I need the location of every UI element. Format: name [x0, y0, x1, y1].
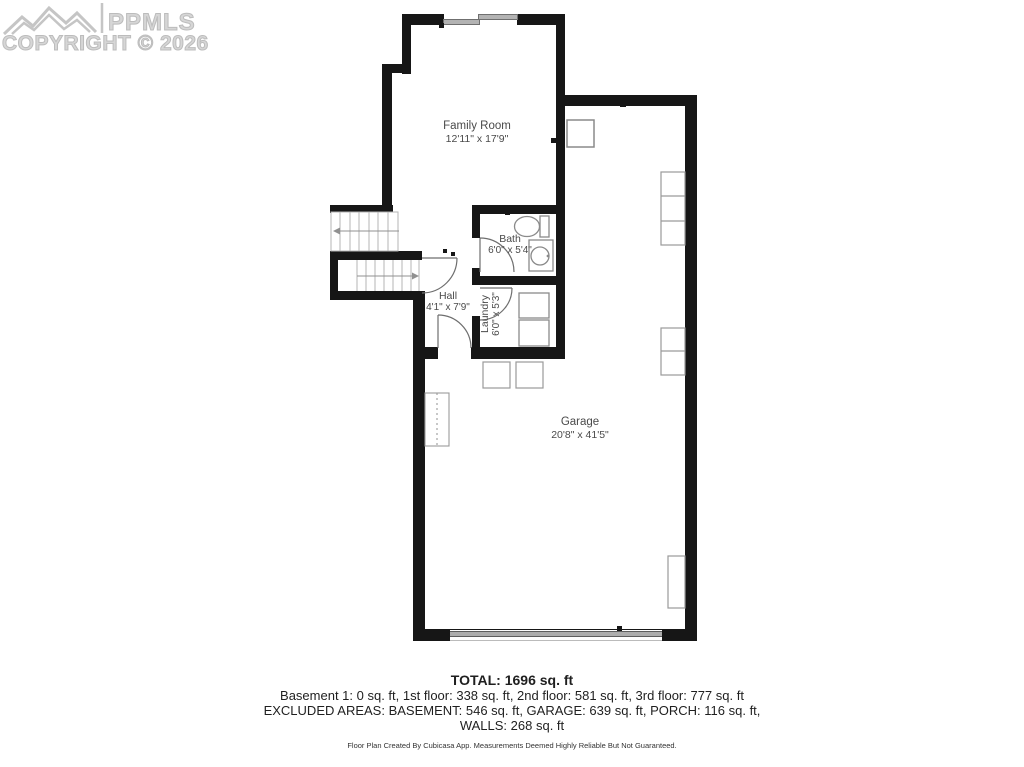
disclaimer-text: Floor Plan Created By Cubicasa App. Meas…	[0, 741, 1024, 750]
staircase-upper-flight	[331, 212, 399, 251]
room-dimensions: 12'11" x 17'9"	[397, 133, 557, 146]
floor-areas: Basement 1: 0 sq. ft, 1st floor: 338 sq.…	[0, 688, 1024, 703]
door-hall-to-garage	[438, 315, 471, 348]
garage-cabinets-right-middle	[661, 328, 685, 375]
garage-appliance-left	[483, 362, 510, 388]
walls-area: WALLS: 268 sq. ft	[0, 718, 1024, 733]
room-name: Bath	[470, 233, 550, 245]
garage-cabinets-right-top	[661, 172, 685, 245]
floor-plan-page: PPMLS COPYRIGHT © 2026	[0, 0, 1024, 767]
washer-fixture	[519, 293, 549, 318]
stair-direction-arrow	[412, 273, 419, 280]
room-label-laundry: Laundry 6'0" x 5'3"	[479, 274, 503, 354]
garage-fixture-square	[567, 120, 594, 147]
room-label-bath: Bath 6'0" x 5'4"	[470, 233, 550, 257]
total-area: TOTAL: 1696 sq. ft	[0, 673, 1024, 688]
room-name: Garage	[500, 416, 660, 429]
garage-appliance-right	[516, 362, 543, 388]
room-dimensions: 6'0" x 5'3"	[491, 274, 503, 354]
staircase-lower-flight	[357, 260, 419, 291]
room-label-garage: Garage 20'8" x 41'5"	[500, 416, 660, 442]
room-dimensions: 20'8" x 41'5"	[500, 429, 660, 442]
room-dimensions: 4'1" x 7'9"	[408, 302, 488, 314]
room-dimensions: 6'0" x 5'4"	[470, 245, 550, 257]
dryer-fixture	[519, 320, 549, 346]
room-label-family-room: Family Room 12'11" x 17'9"	[397, 120, 557, 146]
excluded-areas: EXCLUDED AREAS: BASEMENT: 546 sq. ft, GA…	[0, 703, 1024, 718]
room-name: Family Room	[397, 120, 557, 133]
door-hall-to-family-room	[422, 258, 457, 293]
room-name: Hall	[408, 290, 488, 302]
area-summary: TOTAL: 1696 sq. ft Basement 1: 0 sq. ft,…	[0, 673, 1024, 733]
room-label-hall: Hall 4'1" x 7'9"	[408, 290, 488, 314]
garage-overhead-outline	[425, 393, 449, 446]
garage-fixture-bottom-right	[668, 556, 685, 608]
room-name: Laundry	[479, 274, 491, 354]
